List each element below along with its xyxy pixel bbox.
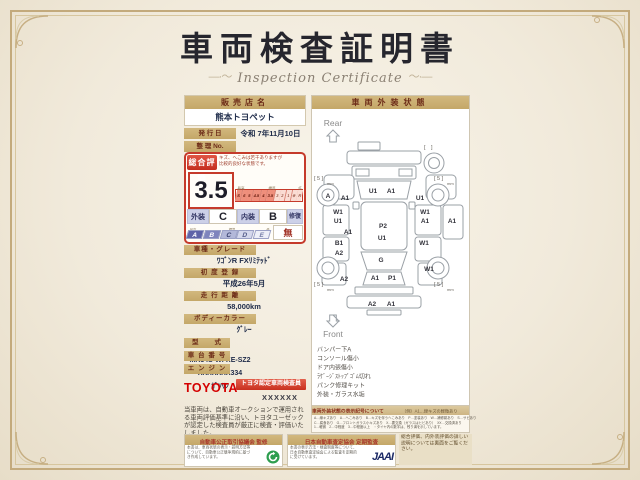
grade-scale: 最高 標準 低 A B C D E — [187, 225, 271, 240]
field-engine: エ ン ジ ン ｶﾞｿﾘﾝ — [184, 364, 306, 376]
field-first-registration: 初 度 登 録 平成26年5月 — [184, 268, 304, 290]
marker: W1 — [419, 240, 429, 247]
car-condition-diagram: Rear Front [ 5 ] mm [ 5 ] mm [ 5 ] mm [ … — [312, 109, 468, 344]
toyota-logo: TOYOTA — [184, 381, 238, 395]
marker: B1 — [335, 240, 344, 247]
subtitle-flourish-left: —·～ — [203, 71, 238, 83]
marker: U1 — [334, 218, 343, 225]
marker: P2 — [379, 223, 387, 230]
wheel-front-left-hub — [322, 262, 334, 274]
toyota-row: TOYOTA トヨタ認定車両検査員 — [184, 379, 306, 393]
marker: U1 — [378, 235, 387, 242]
legend-line: A…線キズあり U…へこみあり B…キズを伴うへこみあり P…塗装あり W…補修… — [314, 416, 400, 419]
field-model-code: 型 式 MH34S-WFXE-SZ2 — [184, 338, 306, 350]
marker: A2 — [368, 301, 377, 308]
left-mirror — [353, 202, 359, 209]
dealer-name: 熊本トヨペット — [185, 109, 305, 125]
overall-score: 3.5 — [188, 172, 234, 209]
grade-cell: E — [253, 230, 271, 239]
note-item: コンソール傷小 — [317, 355, 400, 363]
issue-date-label: 発 行 日 — [184, 128, 236, 139]
svg-text:mm: mm — [447, 181, 454, 186]
rear-glass — [357, 181, 411, 199]
legend-body: A…線キズあり U…へこみあり B…キズを伴うへこみあり P…塗装あり W…補修… — [312, 415, 469, 432]
comment-line-2: 比較的良好な状態です。 — [219, 161, 282, 166]
repair-history-label: 修復歴 — [287, 209, 303, 224]
scale-cells: S 6 5 4.5 4 3.5 3 2 1 ※ R — [235, 189, 303, 202]
field-chassis-no: 車 台 番 号 XXXXXXX334 — [184, 351, 306, 363]
scale-label-std: 標準 — [268, 185, 275, 189]
tread-front-left: [ 5 ] — [314, 282, 324, 288]
note-item: パンク修理キット — [317, 382, 400, 390]
grade-cell: A — [186, 230, 204, 239]
page-subtitle-row: —·～Inspection Certificate～·— — [0, 69, 640, 87]
appraisal-audit-box: 日本自動車査定協会 定期監査 本書の表示方法・検査制度等について、日本自動車査定… — [287, 434, 396, 467]
marker: U1 — [369, 188, 378, 195]
jaai-logo: JAAI — [372, 451, 393, 463]
page-title: 車両検査証明書 — [0, 22, 640, 70]
marker: A1 — [341, 195, 350, 202]
comment-line-1: キズ、へこみは若干ありますが — [219, 155, 282, 160]
spare-tire-hub — [429, 158, 440, 169]
appraisal-audit-header: 日本自動車査定協会 定期監査 — [288, 435, 395, 445]
note-item: バンパー下A — [317, 346, 400, 354]
wheel-rear-right-hub — [432, 189, 444, 201]
front-panel — [355, 287, 413, 294]
rear-garnish — [358, 142, 380, 150]
evaluation-header: 総合評価 — [187, 155, 217, 170]
tread-spare: [ ] — [424, 145, 433, 151]
note-item: 外装・ガラス水垢 — [317, 391, 400, 399]
overall-evaluation-box: 総合評価 キズ、へこみは若干ありますが 比較的良好な状態です。 3.5 最高 標… — [184, 152, 306, 244]
corner-flourish — [588, 428, 628, 468]
grade-cell: B — [203, 230, 221, 239]
marker: A1 — [448, 218, 457, 225]
repair-history-value: 無 — [273, 225, 303, 240]
exterior-condition-panel: 車両外装状態 — [311, 95, 470, 433]
front-bumper — [347, 296, 421, 308]
marker: A — [326, 193, 331, 200]
inspector-number: XXXXXX — [262, 393, 298, 402]
marker: A1 — [421, 218, 430, 225]
marker: U1 — [416, 195, 425, 202]
marker: W1 — [333, 209, 343, 216]
tread-rear-right: [ 5 ] — [434, 176, 444, 182]
marker: G — [378, 257, 383, 264]
appraisal-audit-body: 本書の表示方法・検査制度等について、日本自動車査定協会による監査を定期的に受けて… — [288, 445, 395, 470]
condition-notes: バンパー下A コンソール傷小 ドア内張傷小 ﾗｹﾞｰｼﾞｽﾄｯﾌﾟｺﾞﾑ切れ パ… — [317, 346, 407, 400]
svg-text:mm: mm — [327, 181, 334, 186]
field-model-grade: 車種・グレード ﾜｺﾞﾝR FXﾘﾐﾃｯﾄﾞ — [184, 245, 304, 267]
fair-trade-header: 自動車公正取引協議会 監修 — [185, 435, 282, 445]
score-scale: 最高 標準 低 S 6 5 4.5 4 3.5 3 2 1 ※ R — [235, 171, 303, 208]
marker: W1 — [420, 209, 430, 216]
dealer-header: 販売店名 — [185, 96, 305, 109]
evaluation-comment: キズ、へこみは若干ありますが 比較的良好な状態です。 — [217, 155, 303, 171]
interior-label: 内装 — [237, 209, 259, 224]
score-row: 3.5 最高 標準 低 S 6 5 4.5 4 3.5 3 2 1 ※ — [187, 171, 303, 208]
svg-text:mm: mm — [327, 287, 334, 292]
eco-certification-icon — [266, 450, 280, 464]
interior-grade: B — [259, 209, 287, 224]
inspector-badge: トヨタ認定車両検査員 — [236, 379, 306, 390]
tail-lamp-right — [399, 169, 412, 176]
tail-lamp-left — [356, 169, 369, 176]
dealer-box: 販売店名 熊本トヨペット — [184, 95, 306, 126]
marker: A1 — [371, 275, 380, 282]
grade-scale-row: 最高 標準 低 A B C D E 無 — [187, 225, 303, 240]
ref-no-label: 整 理 No. — [184, 141, 236, 152]
back-side-note: 総合評価、内外装評価の詳しい説明については裏面をご覧ください。 — [399, 434, 472, 465]
rear-bumper — [347, 151, 421, 164]
legend-line: C…腐食あり G…フロントガラス小キズあり X…要交換（ガラスはヒビあり） XX… — [314, 421, 400, 424]
front-under-garnish — [367, 310, 401, 315]
hood — [363, 272, 405, 285]
field-mileage: 走 行 距 離 58,000km — [184, 291, 304, 313]
marker: A1 — [387, 188, 396, 195]
note-item: ドア内張傷小 — [317, 364, 400, 372]
legend-line: 1…軽微 2…中程度 3…中程度以上 ・タイヤ内の数字は、残り溝を示しています。 — [314, 425, 400, 428]
legend-title: 車両外装状態の表示記号について — [312, 407, 384, 414]
scale-label-high: 最高 — [237, 185, 244, 189]
evaluation-header-row: 総合評価 キズ、へこみは若干ありますが 比較的良好な状態です。 — [187, 155, 303, 171]
marker: A1 — [387, 301, 396, 308]
svg-text:mm: mm — [447, 287, 454, 292]
rear-arrow-icon — [327, 130, 339, 142]
grade-cell: D — [236, 230, 254, 239]
legend-header: 車両外装状態の表示記号について （例）A1…線キズの軽微あり — [312, 406, 469, 415]
legend-example: （例）A1…線キズの軽微あり — [402, 408, 458, 414]
marker: A2 — [340, 276, 349, 283]
symbol-legend: 車両外装状態の表示記号について （例）A1…線キズの軽微あり A…線キズあり U… — [311, 405, 470, 433]
exterior-interior-row: 外装 C 内装 B 修復歴 — [187, 209, 303, 224]
front-arrow-icon — [327, 315, 339, 327]
issue-date-row: 発 行 日 令和 7年11月10日 — [184, 128, 306, 140]
tread-front-right: [ 5 ] — [434, 282, 444, 288]
page-subtitle: Inspection Certificate — [237, 71, 402, 86]
vehicle-info-panel: 販売店名 熊本トヨペット 発 行 日 令和 7年11月10日 整 理 No. 総… — [184, 95, 306, 435]
marker: A2 — [335, 250, 344, 257]
exterior-grade: C — [209, 209, 237, 224]
marker: P1 — [388, 275, 396, 282]
fair-trade-box: 自動車公正取引協議会 監修 本書は、車両状態の表示・説明方法等について、自動車公… — [184, 434, 283, 467]
rear-label: Rear — [324, 118, 343, 128]
corner-flourish — [12, 428, 52, 468]
scale-label-low: 低 — [298, 185, 302, 189]
appraisal-audit-text: 本書の表示方法・検査制度等について、日本自動車査定協会による監査を定期的に受けて… — [290, 446, 359, 460]
marker: W1 — [424, 266, 434, 273]
note-item: ﾗｹﾞｰｼﾞｽﾄｯﾌﾟｺﾞﾑ切れ — [317, 373, 400, 381]
grade-cells: A B C D E — [187, 230, 271, 239]
tread-rear-left: [ 5 ] — [314, 176, 324, 182]
windshield — [361, 252, 407, 270]
exterior-label: 外装 — [187, 209, 209, 224]
exterior-condition-header: 車両外装状態 — [312, 96, 469, 109]
fair-trade-body: 本書は、車両状態の表示・説明方法等について、自動車公正競争規約に基づき作成してい… — [185, 445, 282, 470]
front-label: Front — [323, 329, 343, 339]
right-mirror — [409, 202, 415, 209]
subtitle-flourish-right: ～·— — [403, 71, 438, 83]
fair-trade-text: 本書は、車両状態の表示・説明方法等について、自動車公正競争規約に基づき作成してい… — [187, 446, 253, 460]
issue-date-value: 令和 7年11月10日 — [240, 128, 300, 139]
scale-cell: R — [296, 190, 303, 201]
marker: A1 — [344, 229, 353, 236]
field-body-color: ボディーカラー ｸﾞﾚｰ — [184, 314, 304, 336]
